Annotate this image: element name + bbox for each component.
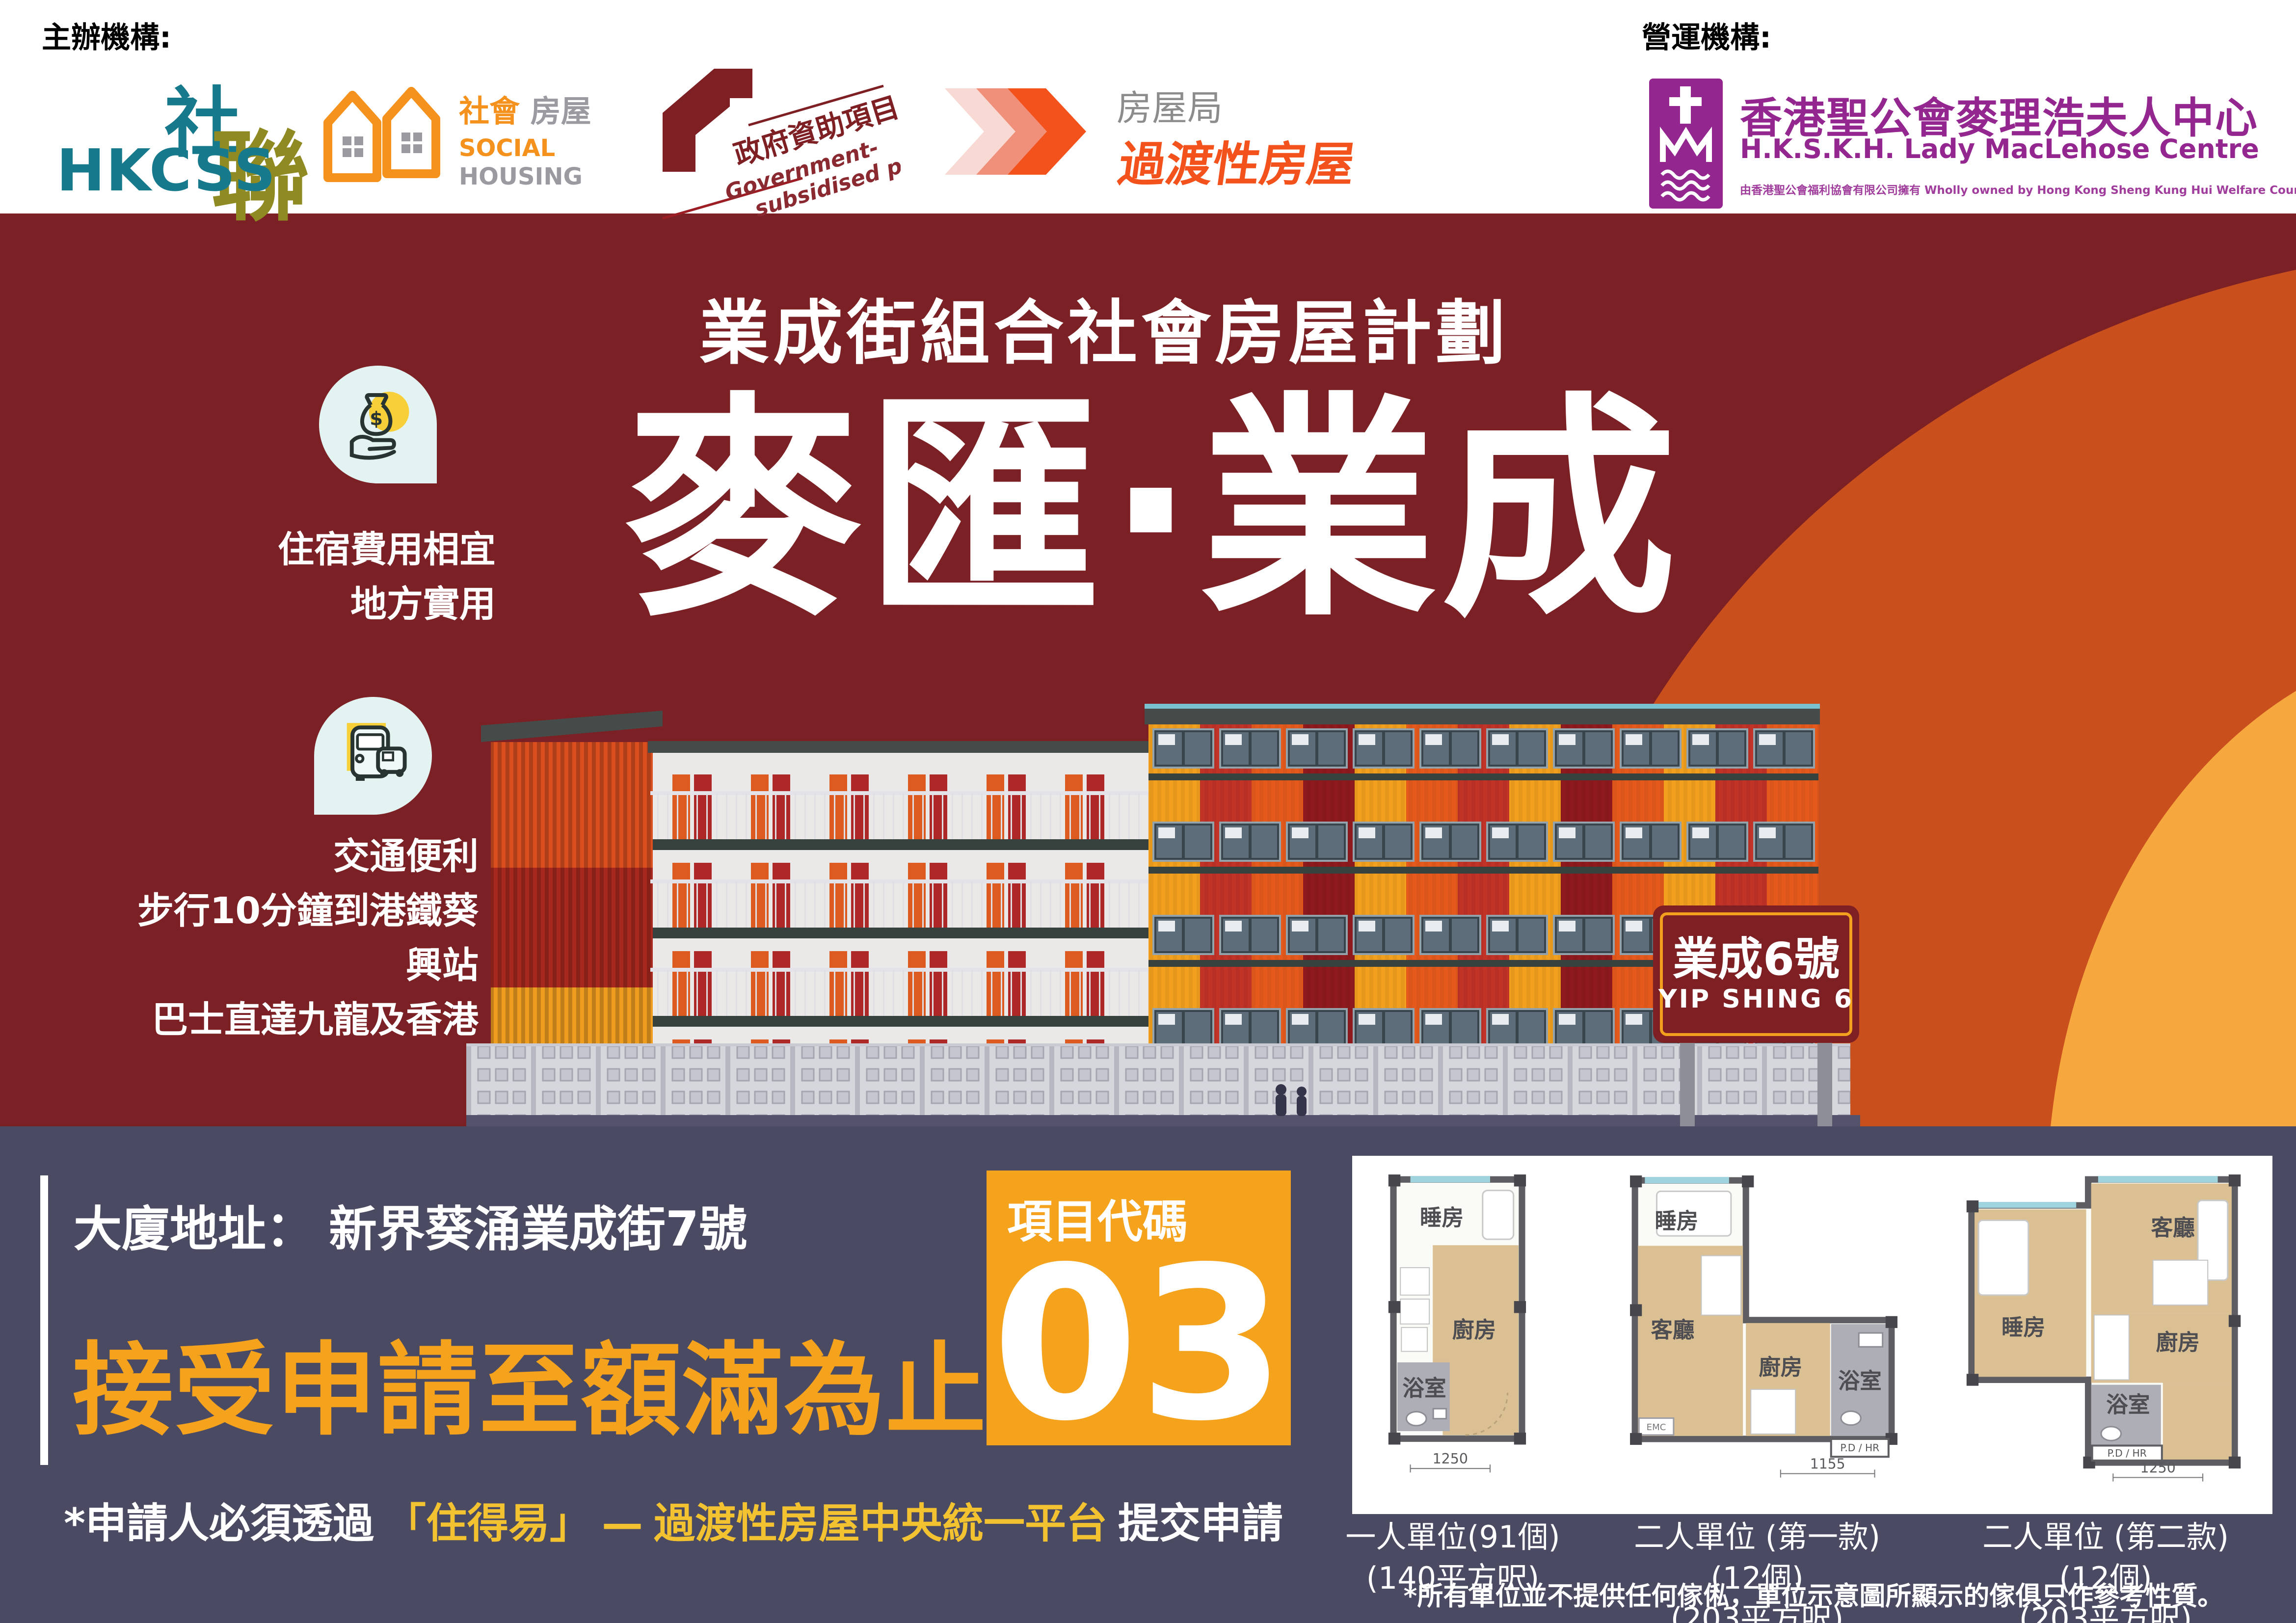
hkcss-logo: 社 聯 HKCSS: [54, 59, 309, 206]
currency-symbol: $: [370, 408, 383, 430]
feature-affordable-text: 住宿費用相宜 地方實用: [206, 523, 496, 632]
pd-label: P.D / HR: [2108, 1447, 2147, 1459]
feature-affordable-bubble: $: [319, 366, 437, 483]
room-label-bedroom: 睡房: [1420, 1205, 1464, 1231]
sign-name-zh: 業成6號: [1673, 934, 1840, 984]
gov-subsidised-logo: 政府資助項目 Government- subsidised project: [636, 47, 901, 238]
plan-dimension: 1250: [1433, 1451, 1468, 1467]
sh-zh-orange: 社會: [459, 93, 520, 129]
hb-bureau: 房屋局: [1117, 87, 1223, 129]
feature-transport-bubble: [314, 697, 432, 815]
sh-en-gray: HOUSING: [459, 163, 583, 190]
scheme-title: 業成街組合社會房屋計劃: [564, 276, 1644, 377]
sign-leg: [1680, 1042, 1695, 1126]
feature-transport-text: 交通便利 步行10分鐘到港鐵葵興站 巴士直達九龍及香港: [103, 829, 479, 1047]
floor-plans-panel: 睡房 廚房 浴室 1250: [1352, 1156, 2272, 1514]
lmc-ownership: 由香港聖公會福利協會有限公司擁有 Wholly owned by Hong Ko…: [1740, 181, 2296, 197]
pd-label: P.D / HR: [1840, 1442, 1879, 1454]
note-quote: 「住得易」: [385, 1499, 591, 1547]
poster: 主辦機構: 社 聯 HKCSS 社會 房屋 SOCIAL HO: [0, 0, 2296, 1623]
project-code-value: 03: [987, 1245, 1291, 1445]
room-label-bedroom: 睡房: [1655, 1209, 1699, 1234]
sign-leg: [1817, 1042, 1832, 1126]
feature-line: 交通便利: [103, 829, 479, 884]
housing-bureau-logo: 房屋局 過渡性房屋: [935, 69, 1377, 211]
lmc-emblem-icon: [1649, 79, 1723, 209]
floor-plan-one-person: 睡房 廚房 浴室 1250: [1384, 1171, 1531, 1494]
hb-programme: 過渡性房屋: [1115, 136, 1359, 191]
room-label-living: 客廳: [2151, 1215, 2194, 1241]
money-bag-icon: $: [336, 383, 420, 466]
sign-name-en: YIP SHING 6: [1658, 984, 1854, 1014]
room-label-bedroom: 睡房: [2002, 1315, 2045, 1340]
room-label-kitchen: 廚房: [1452, 1317, 1496, 1343]
address-label: 大廈地址：: [74, 1201, 314, 1257]
feature-line: 地方實用: [206, 577, 496, 632]
note-prefix: *申請人必須透過: [64, 1499, 374, 1547]
sh-en-orange: SOCIAL: [459, 134, 555, 162]
roof-left: [481, 711, 663, 742]
project-code-box: 項目代碼 03: [987, 1171, 1291, 1445]
note-suffix: 提交申請: [1118, 1499, 1283, 1547]
lmc-name-en: H.K.S.K.H. Lady MacLehose Centre: [1740, 133, 2259, 164]
feature-line: 巴士直達九龍及香港: [103, 993, 479, 1047]
room-label-kitchen: 廚房: [1759, 1355, 1802, 1380]
svg-text:社會 房屋: 社會 房屋: [459, 93, 591, 129]
furniture-disclaimer: *所有單位並不提供任何傢俬，單位示意圖所顯示的傢俱只作參考性質。: [1355, 1575, 2272, 1613]
chevron-icon: [945, 88, 1086, 175]
operator-label: 營運機構:: [1642, 14, 1771, 56]
accent-bar: [40, 1175, 48, 1465]
room-label-living: 客廳: [1651, 1318, 1694, 1343]
header-bar: 主辦機構: 社 聯 HKCSS 社會 房屋 SOCIAL HO: [0, 0, 2296, 213]
yip-shing-sign: 業成6號 YIP SHING 6: [1653, 905, 1859, 1126]
caption-line: 一人單位(91個): [1315, 1517, 1590, 1558]
address-value: 新界葵涌業成街7號: [329, 1201, 747, 1257]
street: [466, 1115, 1860, 1126]
organiser-label: 主辦機構:: [42, 14, 171, 56]
brand-name: 麥匯·業成: [491, 375, 1816, 646]
floor-plan-two-person-1: 睡房 客廳 廚房 浴室 EMC P.D / HR 1155: [1627, 1171, 1899, 1494]
hero-section: 業成街組合社會房屋計劃 麥匯·業成 $ 住宿費用相宜 地方實用: [0, 213, 2296, 1126]
room-label-bath: 浴室: [2106, 1392, 2150, 1417]
bus-icon: [331, 714, 415, 798]
room-label-bath: 浴室: [1402, 1376, 1446, 1401]
social-housing-logo: 社會 房屋 SOCIAL HOUSING: [309, 74, 594, 201]
sign-board: 業成6號 YIP SHING 6: [1653, 905, 1859, 1043]
sh-zh-gray: 房屋: [531, 93, 591, 129]
building-illustration: [466, 697, 1860, 1126]
note-dash: —: [602, 1499, 643, 1547]
application-note: *申請人必須透過「住得易」—過渡性房屋中央統一平台提交申請: [64, 1490, 1294, 1550]
plan-dimension: 1155: [1810, 1456, 1845, 1472]
hkcss-wordmark: HKCSS: [56, 136, 276, 204]
application-headline: 接受申請至額滿為止: [73, 1309, 987, 1455]
perimeter-fence: [466, 1046, 1850, 1115]
emc-label: EMC: [1647, 1422, 1666, 1433]
feature-line: 步行10分鐘到港鐵葵興站: [103, 884, 479, 993]
room-label-kitchen: 廚房: [2156, 1330, 2200, 1356]
footer-section: 大廈地址：新界葵涌業成街7號 接受申請至額滿為止 *申請人必須透過「住得易」—過…: [0, 1126, 2296, 1623]
floor-plan-two-person-2: 睡房 客廳 廚房 浴室 P.D / HR 1250: [1963, 1171, 2243, 1494]
room-label-bath: 浴室: [1838, 1369, 1882, 1394]
feature-line: 住宿費用相宜: [206, 523, 496, 577]
building-address: 大廈地址：新界葵涌業成街7號: [74, 1190, 747, 1260]
note-platform: 過渡性房屋中央統一平台: [654, 1499, 1107, 1547]
plan-dimension: 1250: [2140, 1460, 2176, 1476]
